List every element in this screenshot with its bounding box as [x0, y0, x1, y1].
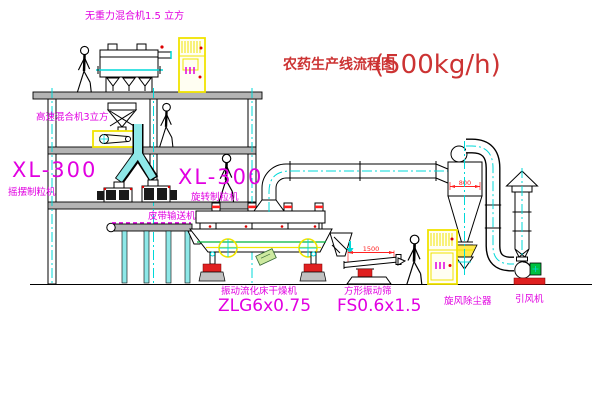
page-title-capacity: (500kg/h) — [374, 50, 501, 80]
label-fan: 引风机 — [515, 293, 544, 305]
label-gravity-mixer: 无重力混合机1.5 立方 — [85, 9, 184, 22]
label-cyclone: 旋风除尘器 — [444, 295, 492, 307]
label-granulator-left-model: XL-300 — [12, 158, 97, 182]
worker-ground — [407, 235, 422, 284]
vibrating-sieve: 1500 — [330, 233, 405, 284]
control-cabinet-right — [428, 230, 457, 284]
label-high-speed-mixer: 高速混合机3立方 — [36, 111, 109, 123]
gravity-free-mixer — [96, 44, 171, 92]
control-cabinet-top — [179, 38, 205, 92]
label-granulator-left-name: 摇摆制粒机 — [8, 186, 56, 198]
worker-roof — [77, 46, 91, 92]
granulator-left — [97, 182, 132, 202]
worker-floor2 — [160, 103, 173, 147]
induced-draft-fan — [514, 257, 545, 285]
dim-1500: 1500 — [363, 245, 380, 253]
diagram-canvas: 800 — [0, 0, 600, 403]
process-flow-diagram: 800 — [0, 0, 600, 403]
label-dryer-model: ZLG6x0.75 — [218, 296, 311, 316]
high-speed-mixer — [93, 103, 137, 147]
label-sieve-model: FS0.6x1.5 — [337, 296, 421, 316]
fluid-bed-dryer — [190, 203, 332, 281]
dryer-leg-left — [199, 252, 225, 281]
label-belt-conveyor: 皮带输送机 — [148, 210, 196, 222]
granulator-right — [142, 180, 177, 202]
exhaust-stack — [507, 168, 538, 262]
label-granulator-mid-model: XL-300 — [178, 165, 263, 189]
label-granulator-mid-name: 旋转制粒机 — [191, 191, 239, 203]
belt-conveyor — [107, 223, 206, 283]
